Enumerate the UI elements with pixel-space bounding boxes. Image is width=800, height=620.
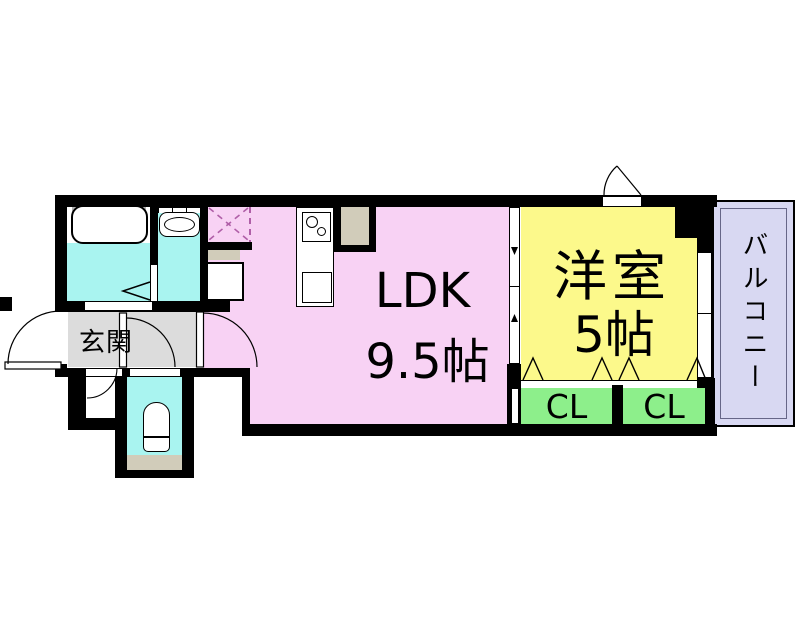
ldk-size-label: 9.5帖 <box>325 322 530 392</box>
entrance-label: 玄関 <box>70 322 142 359</box>
service-space-hatch <box>209 207 250 242</box>
floor-plan: CL CL バルコニー <box>0 0 800 620</box>
western-room-size-label: 5帖 <box>528 295 700 367</box>
ldk-door-leaf <box>197 312 204 367</box>
western-door-swing <box>604 166 617 195</box>
entrance-door-leaf <box>5 362 61 369</box>
ldk-door-swing <box>203 313 257 367</box>
western-door-leaf <box>617 166 641 195</box>
ldk-label: LDK <box>330 263 515 319</box>
alcove-door-swing <box>87 368 117 398</box>
bath-folding-door-icon <box>123 282 150 300</box>
entrance-door-swing <box>8 311 61 364</box>
